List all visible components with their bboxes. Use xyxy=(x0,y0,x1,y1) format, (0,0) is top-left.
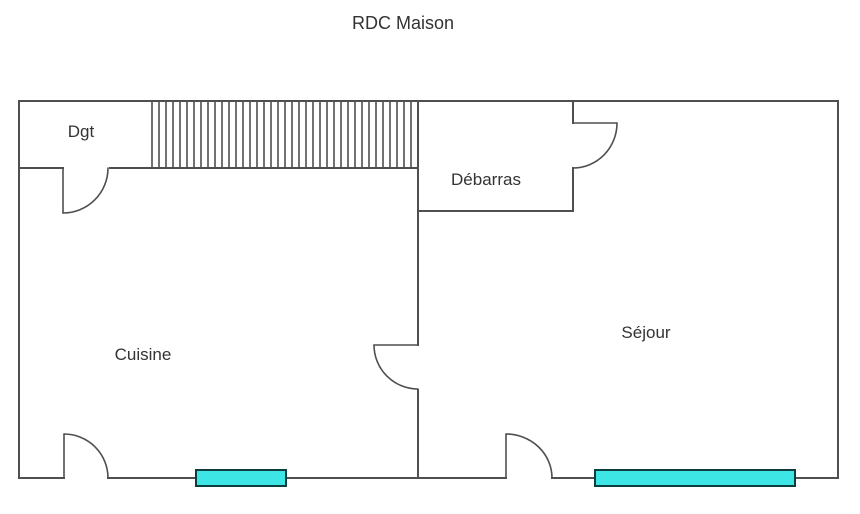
kitchen-window xyxy=(196,470,286,486)
floor-plan-page: RDC Maison xyxy=(0,0,860,514)
room-label-living: Séjour xyxy=(621,323,670,342)
living-entry-door-arc xyxy=(506,434,552,478)
room-label-kitchen: Cuisine xyxy=(115,345,172,364)
living-window xyxy=(595,470,795,486)
stairs-hatch xyxy=(152,102,411,167)
doors xyxy=(63,123,617,478)
room-label-storage: Débarras xyxy=(451,170,521,189)
walls xyxy=(19,101,838,478)
room-label-hallway: Dgt xyxy=(68,122,95,141)
page-title: RDC Maison xyxy=(352,13,454,33)
floor-plan-drawing: RDC Maison xyxy=(0,0,860,514)
passage-door-arc xyxy=(374,345,418,389)
hallway-door-arc xyxy=(63,168,108,213)
kitchen-entry-door-arc xyxy=(64,434,108,478)
storage-door-arc xyxy=(573,123,617,168)
